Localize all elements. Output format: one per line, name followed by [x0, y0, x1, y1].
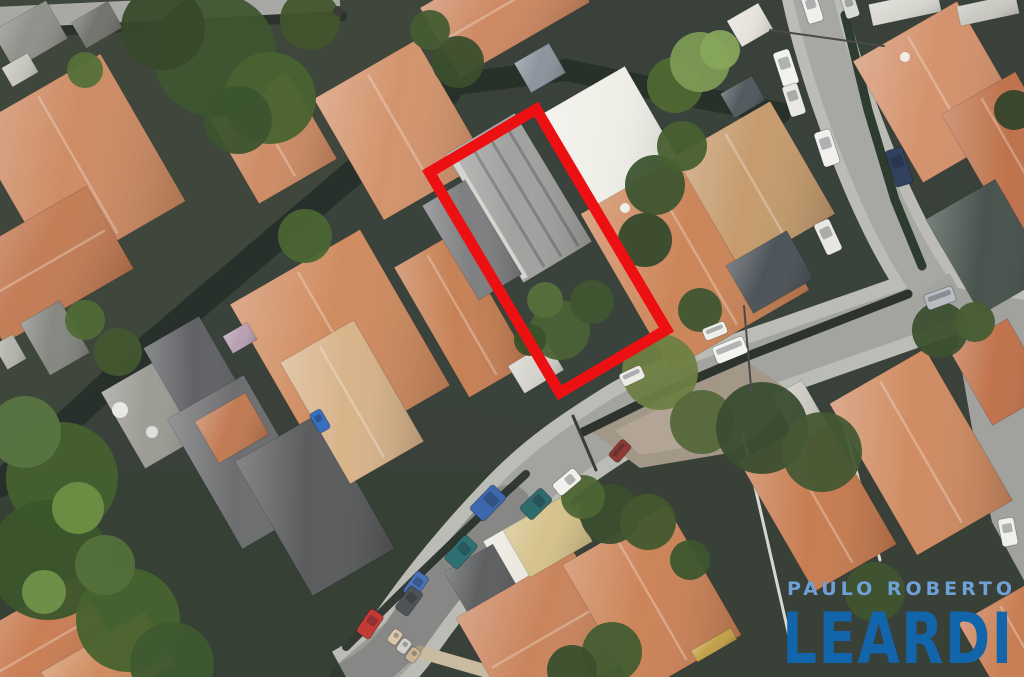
tree-canopy — [670, 540, 710, 580]
building-strip — [957, 0, 1020, 26]
tree-canopy — [52, 482, 104, 534]
tree-canopy — [527, 282, 563, 318]
tree-canopy — [657, 121, 707, 171]
ac-unit — [900, 52, 910, 62]
tree-canopy — [570, 280, 614, 324]
tree-canopy — [845, 562, 905, 622]
ac-unit — [620, 203, 630, 213]
tree-canopy — [75, 535, 135, 595]
tree-canopy — [700, 30, 740, 70]
tree-canopy — [94, 328, 142, 376]
scene-layer — [0, 0, 1024, 677]
tree-canopy — [204, 86, 272, 154]
water-tank — [112, 402, 128, 418]
aerial-photo-stage: PAULO ROBERTO LEARDI — [0, 0, 1024, 677]
tree-canopy — [278, 209, 332, 263]
tree-canopy — [410, 10, 450, 50]
roof-shading — [957, 0, 1020, 26]
water-tank — [146, 426, 158, 438]
tree-canopy — [782, 412, 862, 492]
car-glass — [1001, 523, 1013, 534]
tree-canopy — [955, 302, 995, 342]
ac-unit — [333, 6, 343, 16]
tree-canopy — [620, 494, 676, 550]
aerial-photo — [0, 0, 1024, 677]
tree-canopy — [22, 570, 66, 614]
tree-canopy — [67, 52, 103, 88]
tree-canopy — [65, 300, 105, 340]
car — [772, 48, 799, 87]
